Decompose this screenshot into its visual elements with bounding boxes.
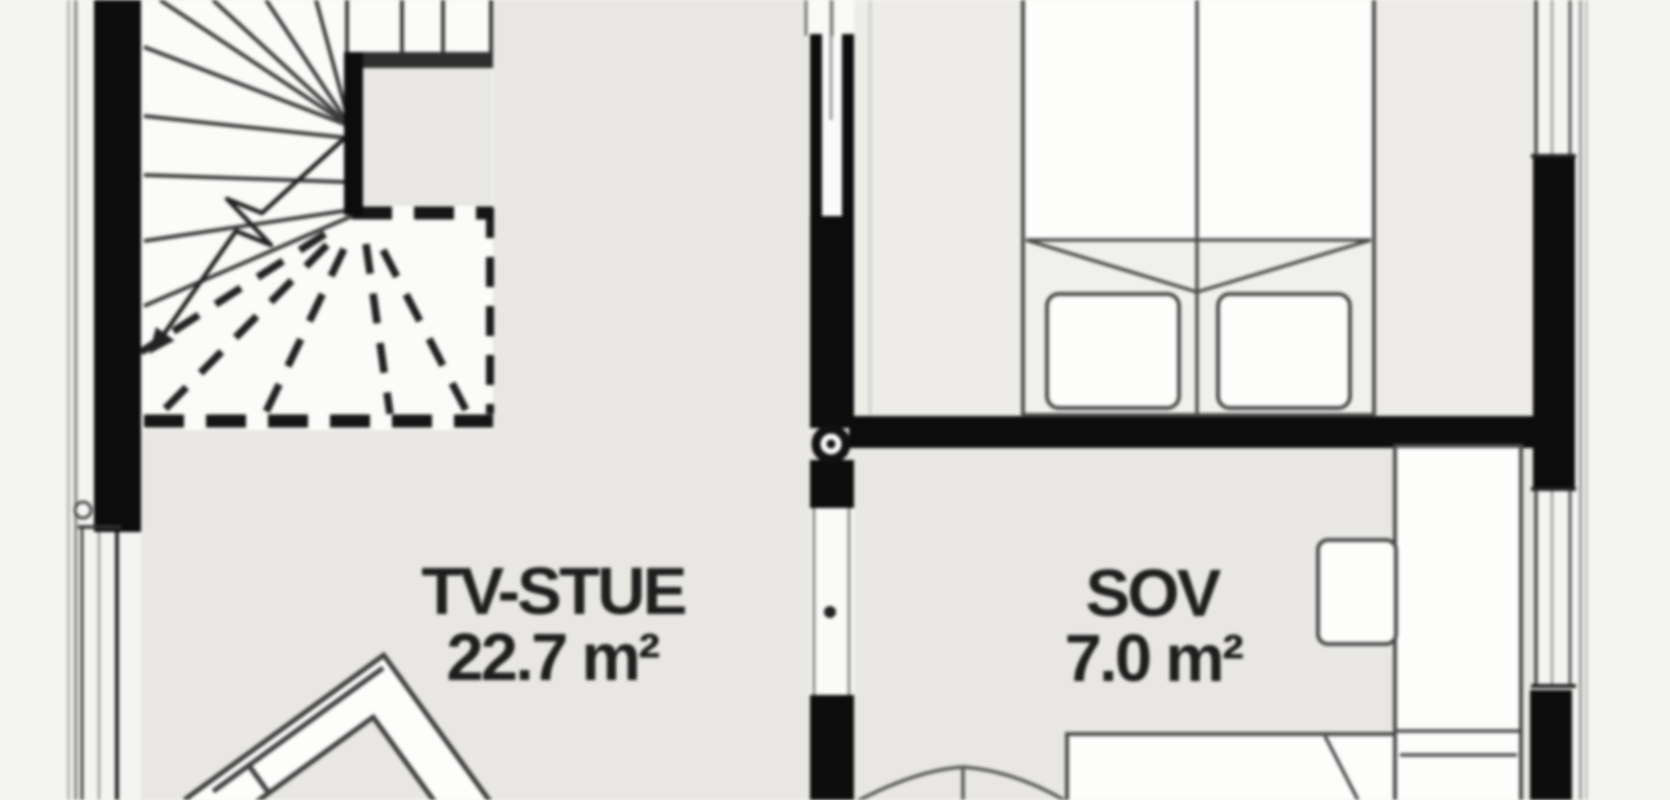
svg-text:TV-STUE: TV-STUE	[421, 554, 685, 629]
svg-text:7.0 m²: 7.0 m²	[1065, 621, 1243, 696]
svg-text:SOV: SOV	[1085, 556, 1221, 631]
svg-text:22.7 m²: 22.7 m²	[446, 620, 659, 695]
